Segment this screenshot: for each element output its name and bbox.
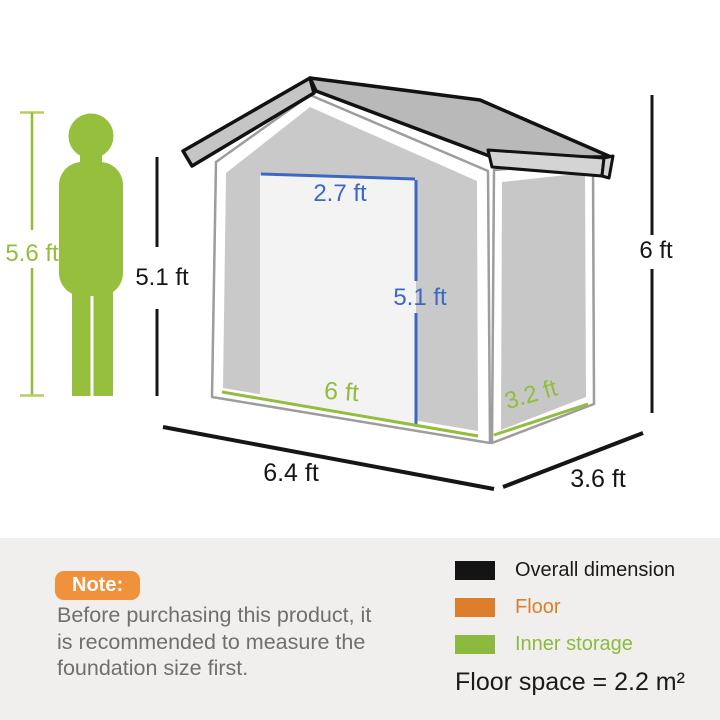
legend: Overall dimension Floor Inner storage xyxy=(455,561,675,672)
inner-storage-swatch xyxy=(455,635,495,654)
legend-label: Overall dimension xyxy=(515,561,675,580)
legend-row-overall-dimension: Overall dimension xyxy=(455,561,675,580)
floor-space-value: Floor space = 2.2 m² xyxy=(455,668,685,697)
overall-height-label: 6 ft xyxy=(639,237,673,264)
note-badge: Note: xyxy=(55,571,140,600)
door-width-label: 2.7 ft xyxy=(313,180,367,207)
note-text: Before purchasing this product, it is re… xyxy=(57,602,437,682)
legend-label: Inner storage xyxy=(515,635,633,654)
overall-dimension-swatch xyxy=(455,561,495,580)
shed-dimensions-infographic: 5.6 ft 5.1 ft 2.7 ft 5.1 ft xyxy=(0,0,720,720)
person-height-label: 5.6 ft xyxy=(5,240,59,267)
person-body xyxy=(59,162,123,296)
legend-label: Floor xyxy=(515,598,561,617)
note-line: is recommended to measure the xyxy=(57,629,437,656)
legend-row-inner-storage: Inner storage xyxy=(455,635,675,654)
wall-height-label: 5.1 ft xyxy=(135,264,189,291)
shed-diagram: 5.6 ft 5.1 ft 2.7 ft 5.1 ft xyxy=(0,0,720,538)
legend-row-floor: Floor xyxy=(455,598,675,617)
door-height-label: 5.1 ft xyxy=(393,284,447,311)
inner-width-label: 6 ft xyxy=(323,377,360,407)
floor-swatch xyxy=(455,598,495,617)
note-line: foundation size first. xyxy=(57,655,437,682)
person-right-leg xyxy=(94,281,114,396)
note-line: Before purchasing this product, it xyxy=(57,602,437,629)
person-left-leg xyxy=(72,281,91,396)
person-silhouette xyxy=(59,114,123,397)
overall-width-label: 6.4 ft xyxy=(263,459,319,487)
overall-depth-label: 3.6 ft xyxy=(570,465,626,493)
info-panel: Note: Before purchasing this product, it… xyxy=(0,538,720,720)
roof-fascia-tip xyxy=(602,156,613,178)
